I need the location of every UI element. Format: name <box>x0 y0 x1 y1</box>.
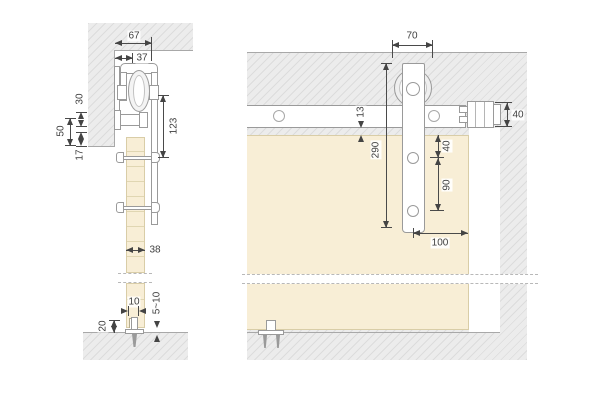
dim-50-arrow <box>67 118 73 125</box>
side-door-grain-line <box>127 196 144 197</box>
side-roller-wheel-groove <box>133 75 145 107</box>
dim-90-arrow <box>435 158 441 165</box>
dim-40-hole-arrow <box>435 151 441 158</box>
front-floor-guide-plate <box>258 330 284 335</box>
dim-70-label: 70 <box>405 31 418 42</box>
dim-123-label: 123 <box>169 117 180 136</box>
dim-30-arrow <box>78 112 84 119</box>
side-door-grain-line <box>127 151 144 152</box>
dim-37-arrow <box>115 55 122 61</box>
dim-123-arrow <box>160 151 166 158</box>
side-spacer-nut <box>139 112 148 128</box>
dim-67-arrow <box>115 40 122 46</box>
dim-38-label: 38 <box>148 245 161 256</box>
dim-100-arrow <box>461 230 468 236</box>
front-end-stop-block <box>467 101 494 128</box>
side-spacer-bolt <box>120 114 140 126</box>
dim-20-label: 20 <box>98 319 109 332</box>
dim-30-arrow <box>78 120 84 127</box>
dim-90-arrow <box>435 204 441 211</box>
side-door-grain-line <box>127 226 144 227</box>
side-bolt-upper-rod <box>123 156 152 160</box>
dim-10-tick <box>128 306 129 316</box>
front-end-stop-seam <box>475 102 476 127</box>
dim-290-arrow <box>383 63 389 70</box>
dim-13-arrow <box>358 135 364 142</box>
dim-37-label: 37 <box>135 53 148 64</box>
dim-10-arrow <box>121 308 128 314</box>
dim-70-arrow <box>426 42 433 48</box>
dim-67-label: 67 <box>127 31 140 42</box>
front-floor-line <box>247 332 500 333</box>
side-door-grain-line <box>127 181 144 182</box>
front-axle-hole <box>406 82 420 96</box>
front-end-stop-cap <box>493 104 501 125</box>
dim-290-arrow <box>383 221 389 228</box>
dim-90-label: 90 <box>442 178 453 191</box>
side-axle-nut-right <box>149 85 159 100</box>
side-door-grain-line <box>127 241 144 242</box>
dim-13-label: 13 <box>356 105 367 118</box>
dim-13-arrow <box>358 121 364 128</box>
side-bolt-lower-head <box>151 202 160 213</box>
dim-38-arrow <box>138 247 145 253</box>
dim-40-hole-arrow <box>435 135 441 142</box>
dim-50-arrow <box>67 139 73 146</box>
front-strap-bolt-hole <box>407 152 419 164</box>
dim-290-line <box>386 63 387 228</box>
side-door-break-lines <box>118 273 152 283</box>
dim-123-line <box>163 95 164 158</box>
dim-40-stop-arrow <box>504 120 510 127</box>
dim-38-arrow <box>126 247 133 253</box>
front-door-break-lines <box>242 274 538 284</box>
dim-40-stop-label: 40 <box>511 110 524 121</box>
dim-100-line <box>413 233 468 234</box>
side-floor-guide-plate <box>125 329 144 334</box>
dim-17-arrow <box>78 132 84 139</box>
side-bolt-lower-rod <box>123 206 152 210</box>
dim-20-arrow <box>111 326 117 333</box>
side-axle-nut-left <box>117 85 127 100</box>
dim-40-hole-label: 40 <box>442 139 453 152</box>
side-door-grain-line <box>127 211 144 212</box>
dim-10-arrow <box>139 308 146 314</box>
front-track-hole <box>428 110 440 122</box>
dim-floor-gap-label: 5~10 <box>152 291 163 316</box>
dim-100-label: 100 <box>431 238 450 249</box>
dim-40-stop-arrow <box>504 103 510 110</box>
front-opening-strip <box>469 128 500 333</box>
dim-30-label: 30 <box>75 92 86 105</box>
front-end-stop-seam <box>484 102 485 127</box>
dim-67-ext <box>151 37 152 61</box>
dim-37-ext <box>132 53 133 63</box>
dim-17-label: 17 <box>75 148 86 161</box>
dim-17-arrow <box>78 139 84 146</box>
side-door-grain-line <box>127 256 144 257</box>
dim-123-arrow <box>160 95 166 102</box>
front-track-hole <box>273 110 285 122</box>
dim-50-label: 50 <box>56 124 67 137</box>
side-lintel-bottom-line <box>114 50 193 51</box>
installation-diagram: 67 37 30 50 17 123 38 <box>0 0 600 400</box>
side-wall-bottom-line <box>88 146 115 147</box>
dim-floor-gap-arrow <box>154 335 160 342</box>
dim-290-label: 290 <box>371 141 382 160</box>
dim-floor-gap-arrow <box>154 321 160 328</box>
dim-17-tick <box>76 146 87 147</box>
front-wall-top-line <box>247 52 527 53</box>
side-door-grain-line <box>127 166 144 167</box>
dim-100-arrow <box>413 230 420 236</box>
dim-70-arrow <box>392 42 399 48</box>
front-strap-bolt-hole <box>407 205 419 217</box>
